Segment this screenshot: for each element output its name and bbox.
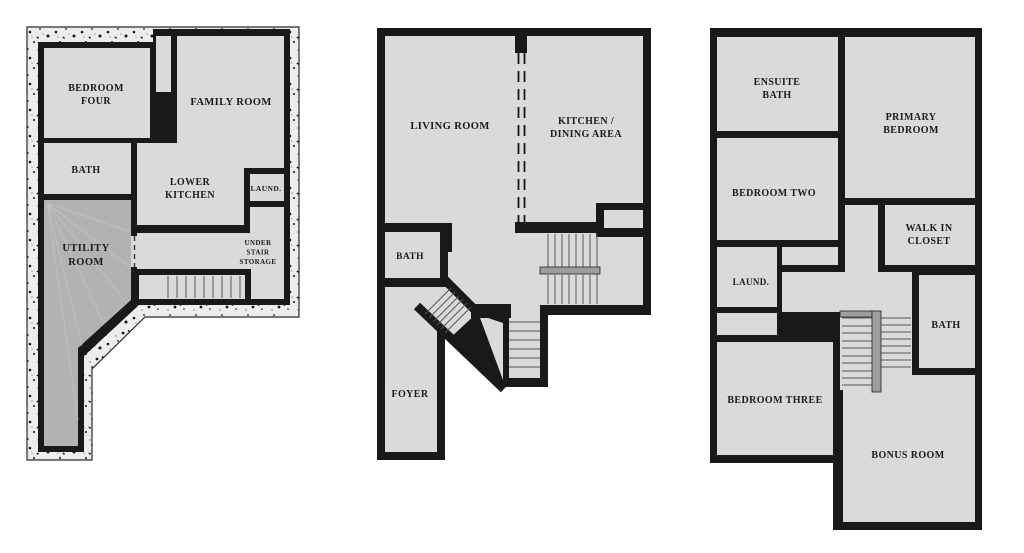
bath-label: BATH	[931, 320, 960, 331]
family-room-label: FAMILY ROOM	[190, 97, 271, 108]
divider-wall-stub	[515, 29, 527, 53]
upper-stairs-top-rail	[840, 311, 872, 317]
laundry-label: LAUND.	[733, 277, 770, 287]
floor-basement: BEDROOMFOURFAMILY ROOMBATHLOWERKITCHENLA…	[27, 27, 299, 460]
alcove-top-wall	[596, 203, 651, 210]
foyer-label: FOYER	[392, 389, 429, 400]
bonus-room-label: BONUS ROOM	[871, 450, 944, 461]
bath-bottom-wall	[377, 278, 450, 287]
bedroom-two-label: BEDROOM TWO	[732, 188, 816, 199]
bath-label: BATH	[71, 165, 100, 176]
room-living-kitchen	[385, 36, 643, 305]
kitchen-bottom-wall	[515, 222, 598, 233]
laundry-label: LAUND.	[251, 184, 282, 193]
hall-upper-south	[782, 272, 912, 312]
floor-plans-drawing: BEDROOMFOURFAMILY ROOMBATHLOWERKITCHENLA…	[0, 0, 1024, 553]
floor-main: LIVING ROOMKITCHEN /DINING AREABATHFOYER	[377, 28, 651, 460]
living-room-label: LIVING ROOM	[410, 121, 489, 132]
niche	[156, 36, 171, 92]
basement-stairs-floor	[139, 275, 245, 299]
bedroom-two-closet	[782, 247, 838, 265]
room-walk-in-closet	[885, 205, 975, 265]
alcove-bottom-wall	[596, 228, 651, 237]
bath-top-wall	[377, 223, 452, 232]
bath-label: BATH	[396, 252, 424, 262]
bedroom-three-label: BEDROOM THREE	[727, 395, 822, 406]
floor-upper: ENSUITEBATHPRIMARYBEDROOMBEDROOM TWOWALK…	[710, 28, 982, 530]
hall-upper-north	[845, 205, 878, 272]
linen-closet	[717, 313, 777, 335]
floor-plan-sheet: BEDROOMFOURFAMILY ROOMBATHLOWERKITCHENLA…	[0, 0, 1024, 553]
upper-stairs-handrail	[872, 311, 881, 392]
stair-hall-wall	[471, 304, 511, 318]
main-stairs-handrail	[540, 267, 600, 274]
